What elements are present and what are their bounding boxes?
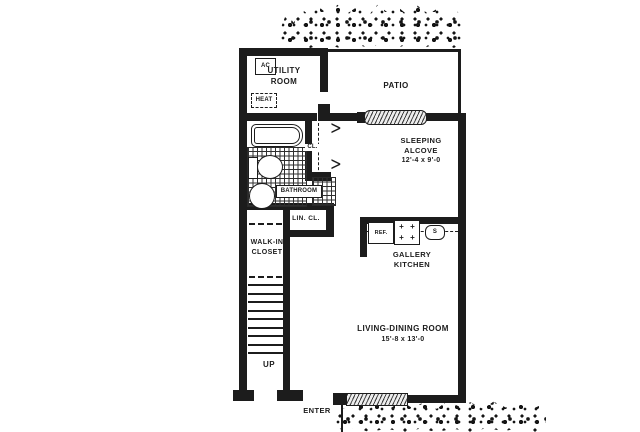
sleeping-alcove-dims: 12'-4 x 9'-0 [384, 156, 458, 166]
burner-icon: + [396, 233, 407, 244]
patio-fence-right [458, 49, 461, 115]
bathtub [251, 124, 303, 147]
stair-tread [248, 335, 283, 337]
stove: + + + + [394, 220, 420, 245]
patio-sliding-door [364, 110, 427, 125]
closet-rod-lower [249, 276, 282, 278]
sink-basin [249, 183, 275, 209]
enter-label: ENTER [294, 406, 340, 417]
trees-top [281, 2, 463, 48]
stair-tread [248, 310, 283, 312]
kitchen-sink-label: S [426, 229, 444, 236]
living-dining-label: LIVING-DINING ROOM 15'-8 x 13'-0 [344, 324, 462, 345]
stove-burners: + + + + [396, 222, 418, 243]
patio-fence-top [328, 49, 460, 52]
door-fold-icon: > [330, 120, 342, 138]
burner-icon: + [407, 222, 418, 233]
refrigerator: REF. [368, 222, 394, 244]
wall-top-utility [239, 48, 328, 56]
patio-label: PATIO [371, 81, 421, 92]
wall-right [458, 113, 466, 403]
linen-closet-label: LIN. CL. [286, 214, 326, 225]
wall-entry-jamb [333, 393, 346, 405]
stair-tread [248, 284, 283, 286]
burner-icon: + [407, 233, 418, 244]
walk-in-closet-label: WALK-INCLOSET [242, 238, 292, 258]
floor-plan: > > BATHROOM AC HEAT REF. + + + + S [0, 0, 640, 432]
stair-tread [248, 301, 283, 303]
entry-path-line [341, 403, 343, 432]
entry-window [346, 393, 408, 406]
stair-tread [248, 293, 283, 295]
stairs-up-label: UP [255, 360, 283, 371]
door-fold-icon: > [330, 156, 342, 174]
wall-stair-right [283, 203, 290, 392]
closet-rod-upper [249, 223, 282, 225]
stair-tread [248, 318, 283, 320]
kitchen-label: GALLERYKITCHEN [381, 250, 443, 270]
heater-unit: HEAT [251, 93, 277, 108]
wall-left [239, 48, 247, 393]
wall-kitchen-left [360, 217, 367, 257]
toilet-bowl [257, 155, 283, 179]
living-dining-dims: 15'-8 x 13'-0 [344, 335, 462, 346]
stair-tread [248, 327, 283, 329]
sleeping-alcove-label: SLEEPING ALCOVE 12'-4 x 9'-0 [384, 136, 458, 166]
kitchen-sink: S [425, 225, 445, 240]
wall-left-footing [233, 390, 254, 401]
refrigerator-label: REF. [369, 230, 393, 237]
wall-stair-right-footing [277, 390, 303, 401]
heat-label: HEAT [252, 97, 276, 104]
bathtub-inner-line [254, 127, 300, 144]
utility-room-label: UTILITYROOM [246, 66, 322, 87]
bathroom-label: BATHROOM [276, 185, 322, 198]
stair-tread [248, 344, 283, 346]
burner-icon: + [396, 222, 407, 233]
wall-linen-bottom [283, 230, 334, 237]
stair-tread [248, 352, 283, 354]
closet-label: CL. [305, 144, 320, 151]
